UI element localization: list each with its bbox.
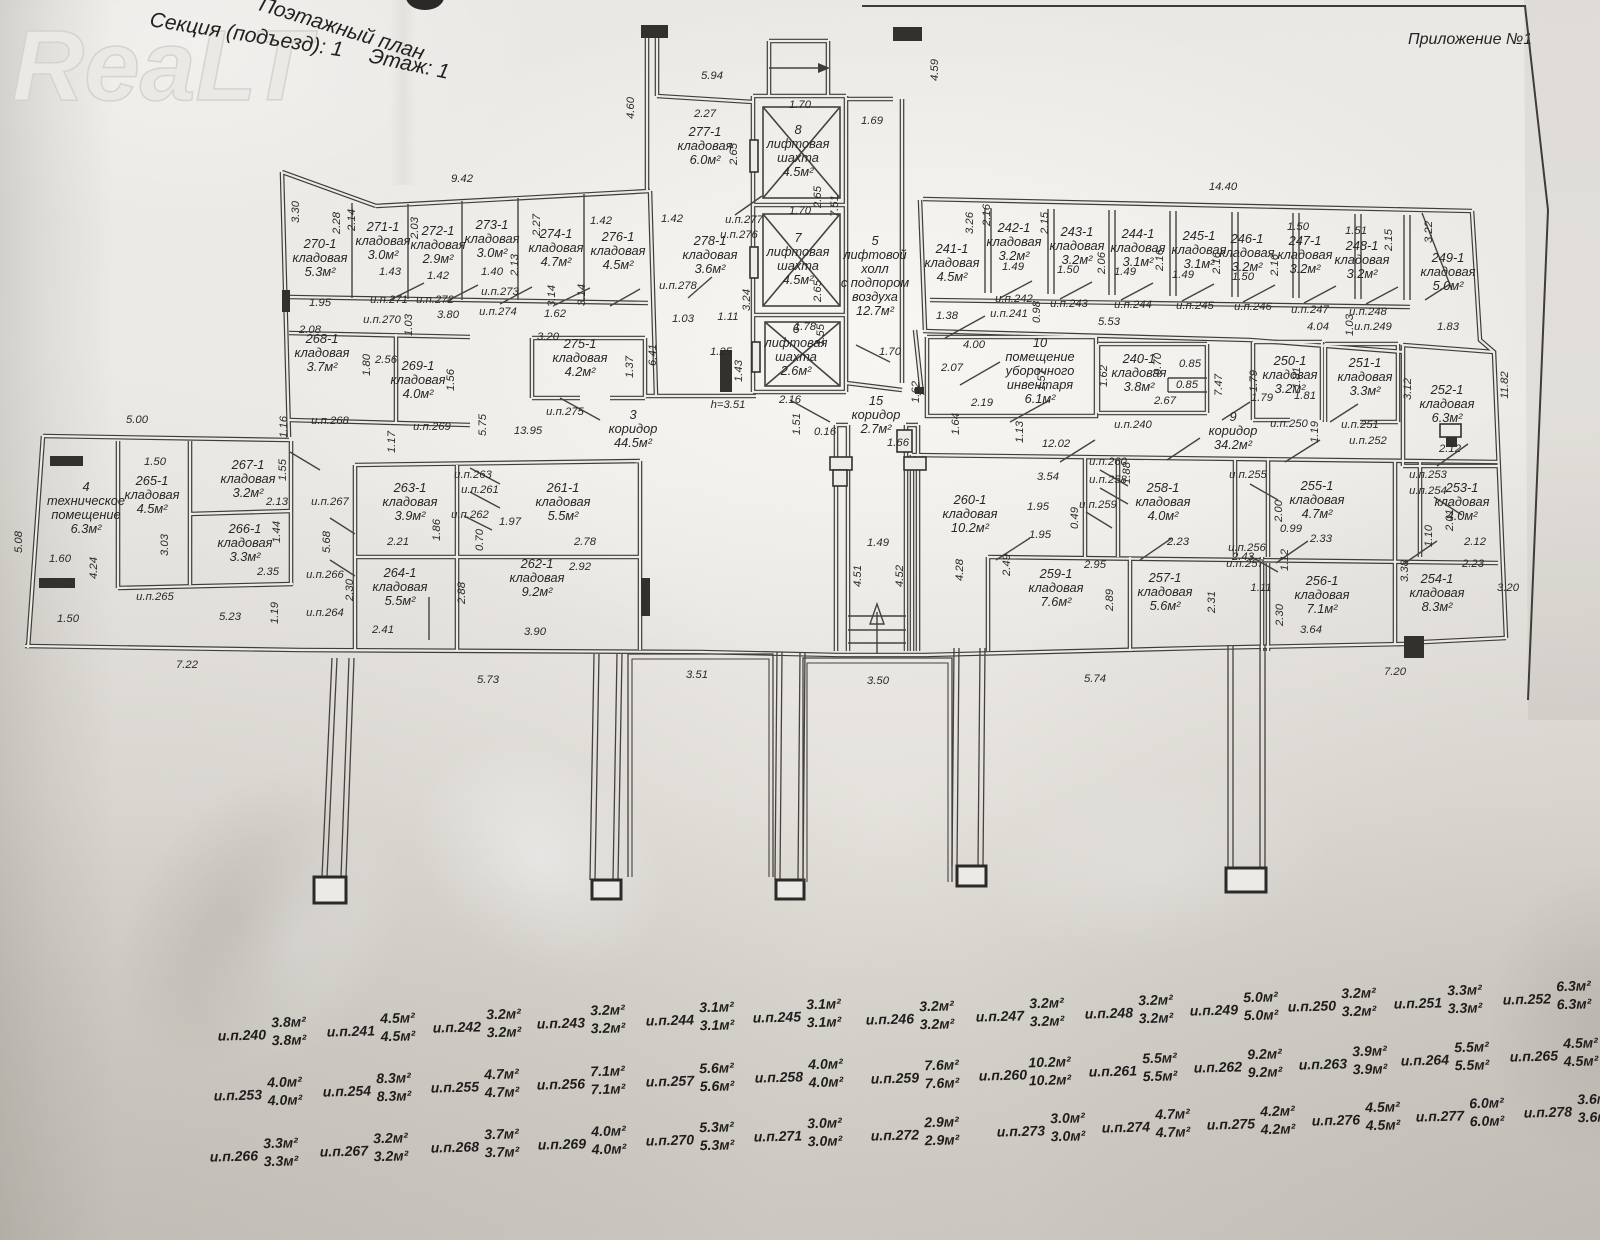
svg-text:2.16: 2.16 xyxy=(1269,253,1281,277)
svg-text:4.5м²: 4.5м² xyxy=(1562,1034,1598,1051)
svg-text:0.85: 0.85 xyxy=(1176,379,1199,391)
svg-text:3.3м²: 3.3м² xyxy=(1448,999,1483,1016)
svg-text:5.00: 5.00 xyxy=(126,414,149,426)
svg-text:кладовая: кладовая xyxy=(391,372,446,387)
svg-text:6.3м²: 6.3м² xyxy=(1432,410,1464,425)
svg-text:h=3.51: h=3.51 xyxy=(711,399,746,411)
svg-text:и.п.247: и.п.247 xyxy=(976,1007,1026,1024)
svg-text:3.30: 3.30 xyxy=(290,200,302,223)
svg-text:4: 4 xyxy=(82,479,89,494)
svg-text:3.2м²: 3.2м² xyxy=(374,1147,409,1164)
svg-text:4.0м²: 4.0м² xyxy=(808,1073,844,1090)
svg-text:и.п.268: и.п.268 xyxy=(311,415,349,427)
svg-text:1.62: 1.62 xyxy=(544,308,567,320)
svg-text:274-1: 274-1 xyxy=(539,226,573,241)
svg-text:кладовая: кладовая xyxy=(678,138,733,153)
svg-text:256-1: 256-1 xyxy=(1305,573,1339,588)
svg-text:3.12: 3.12 xyxy=(1402,377,1414,400)
svg-text:и.п.274: и.п.274 xyxy=(1102,1118,1151,1135)
svg-text:2.65: 2.65 xyxy=(728,142,740,166)
svg-text:6.3м²: 6.3м² xyxy=(71,521,103,536)
svg-text:7.1м²: 7.1м² xyxy=(590,1062,625,1079)
svg-text:1.55: 1.55 xyxy=(277,458,289,481)
svg-text:1.60: 1.60 xyxy=(49,553,72,565)
svg-text:холл: холл xyxy=(860,261,889,276)
svg-text:кладовая: кладовая xyxy=(465,231,520,246)
svg-text:и.п.260: и.п.260 xyxy=(979,1066,1028,1083)
svg-text:лифтовая: лифтовая xyxy=(765,244,829,259)
svg-text:1.19: 1.19 xyxy=(269,601,281,624)
svg-text:1.79: 1.79 xyxy=(1248,369,1260,392)
svg-text:251-1: 251-1 xyxy=(1348,355,1382,370)
svg-text:и.п.254: и.п.254 xyxy=(1409,485,1447,497)
svg-text:1.43: 1.43 xyxy=(733,359,745,382)
svg-text:и.п.248: и.п.248 xyxy=(1349,306,1387,318)
svg-text:5.6м²: 5.6м² xyxy=(700,1077,735,1094)
svg-text:3.24: 3.24 xyxy=(741,289,753,311)
svg-text:1.50: 1.50 xyxy=(1232,271,1255,283)
svg-text:243-1: 243-1 xyxy=(1060,224,1094,239)
svg-text:и.п.263: и.п.263 xyxy=(454,469,492,481)
svg-text:262-1: 262-1 xyxy=(520,556,554,571)
svg-text:4.5м²: 4.5м² xyxy=(783,164,815,179)
svg-text:10.2м²: 10.2м² xyxy=(1028,1053,1071,1070)
svg-text:250-1: 250-1 xyxy=(1273,353,1307,368)
svg-text:1.83: 1.83 xyxy=(1437,321,1460,333)
svg-text:2.19: 2.19 xyxy=(970,397,994,409)
svg-text:0.49: 0.49 xyxy=(1069,506,1081,529)
svg-text:5.0м²: 5.0м² xyxy=(1243,988,1278,1005)
svg-text:1.40: 1.40 xyxy=(481,266,504,278)
svg-text:7.47: 7.47 xyxy=(1213,373,1225,396)
svg-text:2.01: 2.01 xyxy=(1444,509,1456,532)
svg-text:2.14: 2.14 xyxy=(346,209,358,232)
svg-text:и.п.251: и.п.251 xyxy=(1394,994,1443,1011)
svg-text:1.42: 1.42 xyxy=(427,270,450,282)
svg-text:и.п.266: и.п.266 xyxy=(306,569,344,581)
svg-text:2.9м²: 2.9м² xyxy=(923,1113,959,1130)
svg-text:и.п.244: и.п.244 xyxy=(646,1011,695,1028)
svg-text:4.0м²: 4.0м² xyxy=(266,1073,302,1090)
svg-text:и.п.259: и.п.259 xyxy=(871,1069,920,1086)
svg-text:3.2м²: 3.2м² xyxy=(373,1129,408,1146)
svg-text:3: 3 xyxy=(629,407,636,422)
svg-text:3.22: 3.22 xyxy=(1423,220,1435,243)
svg-text:267-1: 267-1 xyxy=(231,457,265,472)
svg-text:3.0м²: 3.0м² xyxy=(808,1132,843,1149)
svg-text:3.7м²: 3.7м² xyxy=(484,1125,519,1142)
svg-text:265-1: 265-1 xyxy=(135,473,169,488)
svg-text:и.п.273: и.п.273 xyxy=(997,1122,1046,1139)
svg-text:3.2м²: 3.2м² xyxy=(1138,991,1173,1008)
svg-text:1.64: 1.64 xyxy=(950,413,962,435)
svg-text:4.60: 4.60 xyxy=(625,96,637,119)
svg-text:4.2м²: 4.2м² xyxy=(1259,1102,1295,1119)
svg-text:1.95: 1.95 xyxy=(1027,501,1050,513)
svg-text:кладовая: кладовая xyxy=(1029,580,1084,595)
svg-text:кладовая: кладовая xyxy=(987,234,1042,249)
svg-text:3.3м²: 3.3м² xyxy=(1350,383,1382,398)
svg-text:9: 9 xyxy=(1229,409,1236,424)
svg-text:и.п.255: и.п.255 xyxy=(1229,469,1267,481)
svg-text:1.57: 1.57 xyxy=(1036,368,1048,391)
svg-text:и.п.261: и.п.261 xyxy=(461,484,499,496)
svg-text:кладовая: кладовая xyxy=(1295,587,1350,602)
svg-text:9.2м²: 9.2м² xyxy=(1247,1045,1282,1062)
svg-text:1.55: 1.55 xyxy=(815,323,827,346)
svg-text:2.30: 2.30 xyxy=(1274,603,1286,627)
svg-text:и.п.261: и.п.261 xyxy=(1089,1062,1138,1079)
svg-text:34.2м²: 34.2м² xyxy=(1214,437,1253,452)
svg-text:1.81: 1.81 xyxy=(1294,390,1316,402)
svg-text:4.0м²: 4.0м² xyxy=(591,1140,627,1157)
svg-text:4.00: 4.00 xyxy=(963,339,986,351)
svg-text:5.68: 5.68 xyxy=(321,530,333,553)
svg-text:1.95: 1.95 xyxy=(309,297,332,309)
svg-text:2.13: 2.13 xyxy=(509,253,521,277)
svg-text:2.16: 2.16 xyxy=(981,203,993,227)
svg-text:и.п.250: и.п.250 xyxy=(1270,418,1308,430)
svg-text:4.0м²: 4.0м² xyxy=(807,1055,843,1072)
svg-text:5.5м²: 5.5м² xyxy=(1142,1049,1177,1066)
svg-text:кладовая: кладовая xyxy=(1050,238,1105,253)
svg-text:2.35: 2.35 xyxy=(256,566,280,578)
svg-text:9.2м²: 9.2м² xyxy=(522,584,554,599)
svg-text:2.41: 2.41 xyxy=(371,624,394,636)
svg-text:3.8м²: 3.8м² xyxy=(1124,379,1156,394)
svg-text:247-1: 247-1 xyxy=(1288,233,1322,248)
svg-text:1.03: 1.03 xyxy=(672,313,695,325)
svg-text:3.3м²: 3.3м² xyxy=(264,1152,299,1169)
svg-text:12.02: 12.02 xyxy=(1042,438,1071,450)
svg-text:и.п.258: и.п.258 xyxy=(755,1068,804,1085)
svg-text:1.17: 1.17 xyxy=(386,430,398,453)
svg-text:и.п.248: и.п.248 xyxy=(1085,1004,1134,1021)
svg-text:1.49: 1.49 xyxy=(1172,269,1195,281)
svg-text:и.п.259: и.п.259 xyxy=(1079,499,1117,511)
svg-text:коридор: коридор xyxy=(1209,423,1258,438)
svg-text:и.п.256: и.п.256 xyxy=(537,1075,586,1092)
svg-text:3.0м²: 3.0м² xyxy=(807,1114,842,1131)
svg-text:3.2м²: 3.2м² xyxy=(590,1001,625,1018)
svg-text:и.п.250: и.п.250 xyxy=(1288,997,1337,1014)
svg-text:2.31: 2.31 xyxy=(1206,591,1218,614)
svg-text:12.7м²: 12.7м² xyxy=(856,303,895,318)
svg-text:4.2м²: 4.2м² xyxy=(1260,1120,1296,1137)
svg-text:269-1: 269-1 xyxy=(401,358,435,373)
svg-text:15: 15 xyxy=(869,393,884,408)
svg-text:7.1м²: 7.1м² xyxy=(1307,601,1339,616)
svg-text:2.65: 2.65 xyxy=(812,185,824,209)
svg-text:1.51: 1.51 xyxy=(1345,225,1367,237)
svg-text:кладовая: кладовая xyxy=(383,494,438,509)
svg-text:1.49: 1.49 xyxy=(1002,261,1025,273)
svg-text:1.81: 1.81 xyxy=(1291,367,1303,389)
svg-text:1.62: 1.62 xyxy=(910,380,922,403)
svg-text:и.п.240: и.п.240 xyxy=(1114,419,1152,431)
svg-text:1.86: 1.86 xyxy=(431,518,443,541)
svg-text:3.6м²: 3.6м² xyxy=(1577,1090,1600,1107)
svg-text:3.2м²: 3.2м² xyxy=(486,1005,521,1022)
svg-text:3.1м²: 3.1м² xyxy=(807,1013,842,1030)
svg-text:и.п.241: и.п.241 xyxy=(990,308,1028,320)
svg-text:кладовая: кладовая xyxy=(1420,396,1475,411)
svg-text:и.п.277: и.п.277 xyxy=(725,214,763,226)
svg-text:2.95: 2.95 xyxy=(1083,559,1107,571)
svg-text:2.12: 2.12 xyxy=(1438,443,1462,455)
svg-text:14.40: 14.40 xyxy=(1209,181,1238,193)
svg-text:2.7м²: 2.7м² xyxy=(860,421,893,436)
svg-text:кладовая: кладовая xyxy=(591,243,646,258)
svg-text:5.5м²: 5.5м² xyxy=(1143,1067,1178,1084)
svg-text:3.2м²: 3.2м² xyxy=(1290,261,1322,276)
svg-text:2.33: 2.33 xyxy=(1309,533,1333,545)
svg-text:кладовая: кладовая xyxy=(293,250,348,265)
svg-text:0.98: 0.98 xyxy=(1031,300,1043,323)
svg-text:1.50: 1.50 xyxy=(1057,264,1080,276)
svg-text:и.п.275: и.п.275 xyxy=(546,406,584,418)
svg-text:лифтовой: лифтовой xyxy=(842,247,906,262)
svg-text:10.2м²: 10.2м² xyxy=(951,520,990,535)
svg-text:1.56: 1.56 xyxy=(445,368,457,391)
svg-text:и.п.272: и.п.272 xyxy=(416,294,454,306)
svg-text:кладовая: кладовая xyxy=(1335,252,1390,267)
svg-text:1.70: 1.70 xyxy=(789,205,812,217)
svg-text:и.п.246: и.п.246 xyxy=(866,1010,915,1027)
svg-text:и.п.276: и.п.276 xyxy=(1312,1111,1361,1128)
svg-text:4.59: 4.59 xyxy=(929,58,941,81)
svg-text:13.95: 13.95 xyxy=(514,425,543,437)
svg-text:5.6м²: 5.6м² xyxy=(1150,598,1182,613)
svg-text:4.0м²: 4.0м² xyxy=(267,1091,303,1108)
svg-text:260-1: 260-1 xyxy=(953,492,987,507)
svg-text:и.п.275: и.п.275 xyxy=(1207,1115,1256,1132)
svg-text:0.70: 0.70 xyxy=(1152,352,1164,375)
svg-text:5.74: 5.74 xyxy=(1084,673,1106,685)
svg-text:и.п.270: и.п.270 xyxy=(363,314,401,326)
svg-text:258-1: 258-1 xyxy=(1146,480,1180,495)
svg-text:2.56: 2.56 xyxy=(374,354,398,366)
svg-text:245-1: 245-1 xyxy=(1182,228,1216,243)
svg-text:и.п.264: и.п.264 xyxy=(306,607,344,619)
svg-text:255-1: 255-1 xyxy=(1300,478,1334,493)
svg-text:и.п.257: и.п.257 xyxy=(646,1072,696,1089)
svg-text:2.9м²: 2.9м² xyxy=(422,251,455,266)
svg-text:и.п.268: и.п.268 xyxy=(431,1138,480,1155)
svg-text:4.04: 4.04 xyxy=(1307,321,1329,333)
svg-text:1.97: 1.97 xyxy=(499,516,522,528)
svg-text:кладовая: кладовая xyxy=(221,471,276,486)
svg-text:3.1м²: 3.1м² xyxy=(700,1016,735,1033)
svg-text:3.3м²: 3.3м² xyxy=(230,549,262,564)
svg-text:8.3м²: 8.3м² xyxy=(376,1069,411,1086)
svg-text:3.26: 3.26 xyxy=(964,211,976,234)
svg-text:1.12: 1.12 xyxy=(1279,548,1291,571)
svg-text:4.5м²: 4.5м² xyxy=(937,269,969,284)
svg-text:3.3м²: 3.3м² xyxy=(263,1134,298,1151)
svg-text:2.23: 2.23 xyxy=(1461,558,1485,570)
svg-text:3.0м²: 3.0м² xyxy=(368,247,400,262)
svg-text:1.42: 1.42 xyxy=(590,215,613,227)
svg-text:276-1: 276-1 xyxy=(601,229,635,244)
svg-text:и.п.267: и.п.267 xyxy=(320,1142,370,1159)
svg-text:3.2м²: 3.2м² xyxy=(233,485,265,500)
svg-text:261-1: 261-1 xyxy=(546,480,580,495)
svg-text:7.1м²: 7.1м² xyxy=(591,1080,626,1097)
svg-text:и.п.241: и.п.241 xyxy=(327,1022,376,1039)
svg-text:1.10: 1.10 xyxy=(1423,524,1435,547)
svg-text:кладовая: кладовая xyxy=(1138,584,1193,599)
svg-text:кладовая: кладовая xyxy=(356,233,411,248)
svg-text:4.5м²: 4.5м² xyxy=(1364,1098,1400,1115)
svg-text:2.65: 2.65 xyxy=(812,279,824,303)
svg-text:1.38: 1.38 xyxy=(936,310,959,322)
svg-text:4.5м²: 4.5м² xyxy=(1365,1116,1401,1133)
svg-text:2.28: 2.28 xyxy=(331,211,343,235)
svg-text:кладовая: кладовая xyxy=(943,506,998,521)
svg-text:1.49: 1.49 xyxy=(1114,266,1137,278)
svg-text:5.5м²: 5.5м² xyxy=(548,508,580,523)
svg-text:и.п.255: и.п.255 xyxy=(431,1078,480,1095)
svg-text:и.п.277: и.п.277 xyxy=(1416,1107,1466,1124)
svg-text:4.5м²: 4.5м² xyxy=(603,257,635,272)
svg-text:1.25: 1.25 xyxy=(710,346,733,358)
svg-text:263-1: 263-1 xyxy=(393,480,427,495)
svg-text:1.66: 1.66 xyxy=(887,437,910,449)
svg-text:и.п.265: и.п.265 xyxy=(136,591,174,603)
svg-text:3.2м²: 3.2м² xyxy=(1347,266,1379,281)
svg-text:и.п.273: и.п.273 xyxy=(481,286,519,298)
svg-text:2.15: 2.15 xyxy=(1039,211,1051,235)
svg-text:и.п.271: и.п.271 xyxy=(370,294,408,306)
svg-text:4.7м²: 4.7м² xyxy=(1155,1123,1191,1140)
svg-text:5.08: 5.08 xyxy=(13,530,25,553)
svg-text:кладовая: кладовая xyxy=(295,345,350,360)
svg-text:кладовая: кладовая xyxy=(1410,585,1465,600)
svg-text:4.51: 4.51 xyxy=(852,565,864,587)
svg-text:и.п.244: и.п.244 xyxy=(1114,299,1152,311)
svg-text:0.85: 0.85 xyxy=(1179,358,1202,370)
svg-text:1.51: 1.51 xyxy=(791,413,803,435)
svg-text:4.7м²: 4.7м² xyxy=(1154,1105,1190,1122)
svg-text:2.43: 2.43 xyxy=(1231,551,1255,563)
svg-text:2.03: 2.03 xyxy=(409,216,421,240)
svg-text:помещение: помещение xyxy=(1005,349,1074,364)
svg-text:273-1: 273-1 xyxy=(475,217,509,232)
svg-text:и.п.243: и.п.243 xyxy=(1050,298,1088,310)
svg-text:2.78: 2.78 xyxy=(573,536,597,548)
svg-text:кладовая: кладовая xyxy=(1278,247,1333,262)
svg-text:коридор: коридор xyxy=(852,407,901,422)
svg-text:и.п.278: и.п.278 xyxy=(659,280,697,292)
svg-text:1.43: 1.43 xyxy=(379,266,402,278)
svg-text:277-1: 277-1 xyxy=(688,124,722,139)
svg-text:шахта: шахта xyxy=(777,150,819,165)
svg-text:2.27: 2.27 xyxy=(693,108,717,120)
svg-text:2.27: 2.27 xyxy=(531,213,543,237)
svg-text:кладовая: кладовая xyxy=(553,350,608,365)
svg-text:1.37: 1.37 xyxy=(624,355,636,378)
svg-text:1.50: 1.50 xyxy=(57,613,80,625)
svg-text:10.2м²: 10.2м² xyxy=(1029,1071,1072,1088)
svg-text:2.49: 2.49 xyxy=(1001,553,1013,577)
svg-text:2.88: 2.88 xyxy=(456,581,468,605)
svg-text:6.0м²: 6.0м² xyxy=(1469,1094,1504,1111)
svg-text:2.6м²: 2.6м² xyxy=(780,363,813,378)
svg-text:3.7м²: 3.7м² xyxy=(307,359,339,374)
svg-text:и.п.242: и.п.242 xyxy=(433,1018,482,1035)
svg-text:и.п.276: и.п.276 xyxy=(720,229,758,241)
svg-text:2.13: 2.13 xyxy=(265,496,289,508)
svg-text:259-1: 259-1 xyxy=(1039,566,1073,581)
svg-text:7.51: 7.51 xyxy=(829,195,841,217)
svg-text:кладовая: кладовая xyxy=(510,570,565,585)
svg-text:242-1: 242-1 xyxy=(997,220,1031,235)
svg-text:2.06: 2.06 xyxy=(1096,251,1108,275)
svg-text:7.6м²: 7.6м² xyxy=(925,1074,960,1091)
svg-text:3.80: 3.80 xyxy=(437,309,460,321)
svg-text:5.5м²: 5.5м² xyxy=(1454,1038,1489,1055)
svg-text:3.3м²: 3.3м² xyxy=(1447,981,1482,998)
svg-text:3.38: 3.38 xyxy=(1399,559,1411,582)
svg-text:0.99: 0.99 xyxy=(1280,523,1303,535)
svg-text:и.п.266: и.п.266 xyxy=(210,1147,259,1164)
svg-text:и.п.252: и.п.252 xyxy=(1503,990,1552,1007)
svg-text:4.5м²: 4.5м² xyxy=(380,1027,416,1044)
svg-text:2.67: 2.67 xyxy=(1153,395,1177,407)
svg-text:4.24: 4.24 xyxy=(88,557,100,579)
svg-text:4.7м²: 4.7м² xyxy=(484,1083,520,1100)
svg-text:1.70: 1.70 xyxy=(789,99,812,111)
svg-text:1.95: 1.95 xyxy=(1029,529,1052,541)
svg-text:3.2м²: 3.2м² xyxy=(919,997,954,1014)
svg-text:1.62: 1.62 xyxy=(1098,364,1110,387)
svg-text:и.п.240: и.п.240 xyxy=(218,1026,267,1043)
svg-text:5.3м²: 5.3м² xyxy=(305,264,337,279)
svg-text:4.7м²: 4.7м² xyxy=(541,254,573,269)
svg-text:2.16: 2.16 xyxy=(1154,248,1166,272)
svg-text:4.5м²: 4.5м² xyxy=(783,272,815,287)
svg-text:и.п.254: и.п.254 xyxy=(323,1082,372,1099)
svg-text:275-1: 275-1 xyxy=(563,336,597,351)
svg-text:3.0м²: 3.0м² xyxy=(1051,1127,1086,1144)
svg-text:4.5м²: 4.5м² xyxy=(137,501,169,516)
svg-text:2.89: 2.89 xyxy=(1104,588,1116,612)
svg-text:кладовая: кладовая xyxy=(1290,492,1345,507)
svg-text:244-1: 244-1 xyxy=(1121,226,1155,241)
svg-text:5.53: 5.53 xyxy=(1098,316,1121,328)
svg-text:4.0м²: 4.0м² xyxy=(403,386,435,401)
svg-text:7: 7 xyxy=(794,230,802,245)
svg-text:3.2м²: 3.2м² xyxy=(920,1015,955,1032)
svg-text:266-1: 266-1 xyxy=(228,521,262,536)
svg-text:и.п.242: и.п.242 xyxy=(995,293,1033,305)
svg-text:кладовая: кладовая xyxy=(1220,245,1275,260)
svg-text:9.2м²: 9.2м² xyxy=(1248,1063,1283,1080)
svg-text:с подпором: с подпором xyxy=(841,275,910,290)
svg-text:4.5м²: 4.5м² xyxy=(1563,1052,1599,1069)
svg-text:1.16: 1.16 xyxy=(278,415,290,438)
svg-text:2.23: 2.23 xyxy=(1166,536,1190,548)
svg-text:241-1: 241-1 xyxy=(935,241,969,256)
svg-text:246-1: 246-1 xyxy=(1230,231,1264,246)
svg-text:5.73: 5.73 xyxy=(477,674,500,686)
svg-text:2.16: 2.16 xyxy=(1211,251,1223,275)
svg-text:и.п.269: и.п.269 xyxy=(413,421,451,433)
svg-text:и.п.272: и.п.272 xyxy=(871,1126,920,1143)
svg-text:кладовая: кладовая xyxy=(1136,494,1191,509)
svg-text:3.2м²: 3.2м² xyxy=(1030,1012,1065,1029)
